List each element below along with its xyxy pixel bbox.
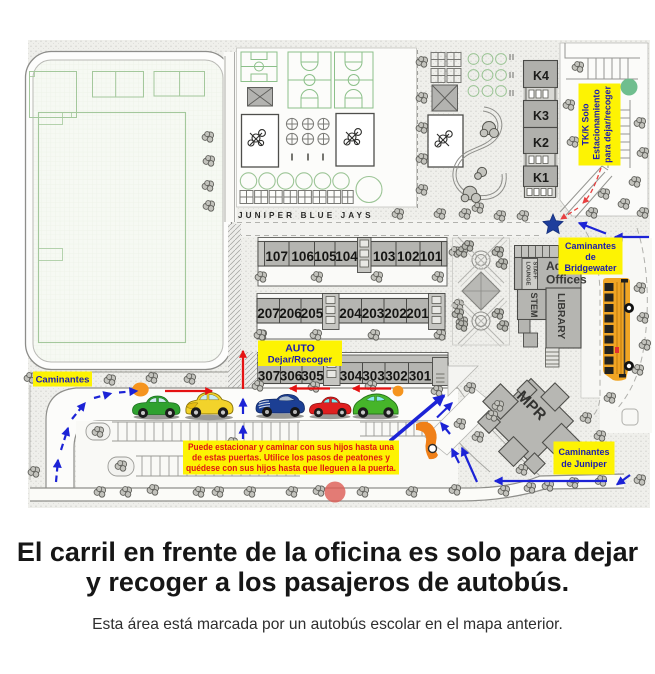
svg-text:Caminantes: Caminantes <box>558 447 609 457</box>
svg-text:302: 302 <box>385 369 408 384</box>
svg-text:AUTO: AUTO <box>285 343 315 355</box>
svg-text:K3: K3 <box>533 109 549 123</box>
svg-text:304: 304 <box>340 369 363 384</box>
svg-text:201: 201 <box>406 306 429 321</box>
svg-text:LIBRARY: LIBRARY <box>555 293 567 339</box>
svg-text:K4: K4 <box>533 69 549 83</box>
svg-text:102: 102 <box>397 249 420 264</box>
svg-text:quédese con sus hijos hasta qu: quédese con sus hijos hasta que lleguen … <box>186 463 396 473</box>
svg-text:Puede estacionar y caminar con: Puede estacionar y caminar con sus hijos… <box>188 442 395 452</box>
svg-text:Estacionamiento: Estacionamiento <box>592 89 602 160</box>
svg-text:301: 301 <box>409 369 432 384</box>
svg-text:106: 106 <box>291 249 314 264</box>
svg-text:105: 105 <box>314 249 337 264</box>
svg-text:204: 204 <box>339 306 362 321</box>
svg-text:de: de <box>585 252 596 262</box>
svg-text:Offices: Offices <box>546 273 587 287</box>
svg-text:K2: K2 <box>533 136 549 150</box>
svg-text:LOUNGE: LOUNGE <box>525 262 531 286</box>
svg-text:104: 104 <box>335 249 358 264</box>
svg-text:JUNIPER BLUE JAYS: JUNIPER BLUE JAYS <box>238 211 374 220</box>
svg-text:Bridgewater: Bridgewater <box>564 263 617 273</box>
svg-text:101: 101 <box>420 249 443 264</box>
svg-text:TK/K Solo: TK/K Solo <box>581 103 591 146</box>
svg-text:de Juniper: de Juniper <box>561 459 607 469</box>
svg-text:Caminantes: Caminantes <box>565 241 616 251</box>
svg-text:Caminantes: Caminantes <box>36 375 90 386</box>
svg-text:para dejar/recoger: para dejar/recoger <box>603 86 613 163</box>
svg-text:205: 205 <box>301 306 324 321</box>
svg-text:107: 107 <box>265 249 288 264</box>
svg-text:STEM: STEM <box>529 293 539 318</box>
svg-text:STAFF: STAFF <box>532 262 538 280</box>
svg-text:103: 103 <box>373 249 396 264</box>
svg-text:203: 203 <box>362 306 385 321</box>
svg-text:K1: K1 <box>533 171 549 185</box>
svg-text:Dejar/Recoger: Dejar/Recoger <box>268 355 333 366</box>
svg-text:306: 306 <box>280 369 303 384</box>
svg-text:202: 202 <box>384 306 407 321</box>
svg-text:de estas puertas. Utilice los: de estas puertas. Utilice los pasos de p… <box>192 453 390 463</box>
svg-text:207: 207 <box>257 306 280 321</box>
svg-text:206: 206 <box>279 306 302 321</box>
